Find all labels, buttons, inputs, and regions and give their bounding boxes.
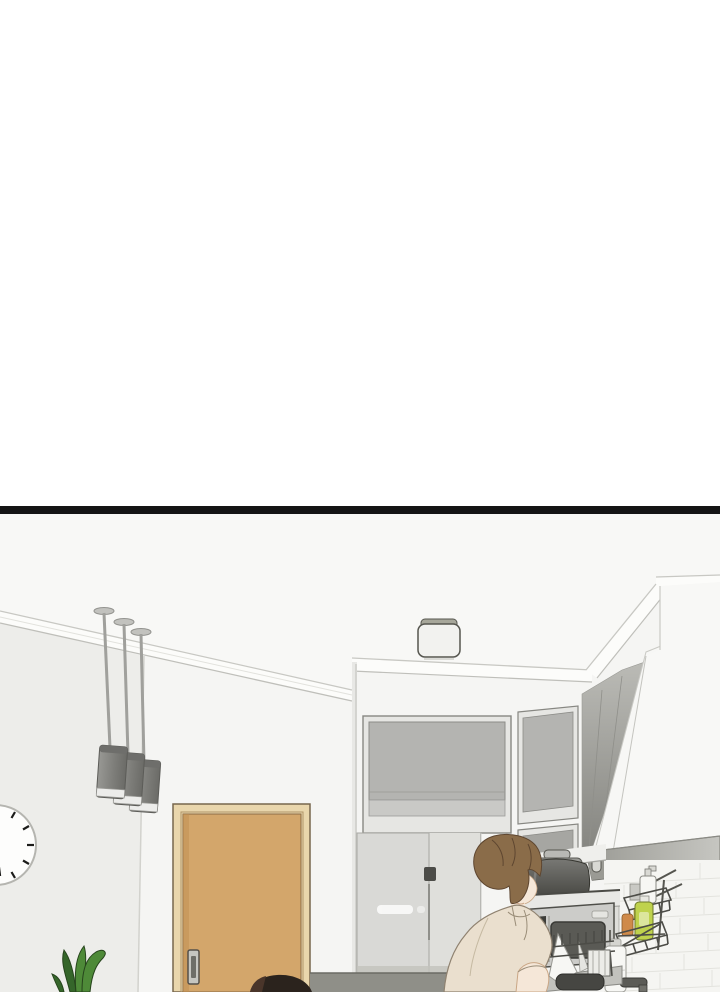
ceiling-light — [418, 619, 460, 659]
microwave-label — [592, 911, 608, 918]
upper-cabinet-panel-right — [518, 706, 578, 824]
door-slab — [183, 814, 301, 992]
panel-illustration[interactable] — [0, 0, 720, 992]
door-handle[interactable] — [188, 950, 199, 984]
fridge-handle[interactable] — [424, 867, 436, 881]
left-wall — [0, 623, 144, 992]
webtoon-page — [0, 0, 720, 992]
panel-divider-line — [0, 506, 720, 514]
door — [173, 804, 310, 992]
dark-pot — [556, 974, 604, 990]
upper-cabinet-panel-left — [363, 716, 511, 833]
